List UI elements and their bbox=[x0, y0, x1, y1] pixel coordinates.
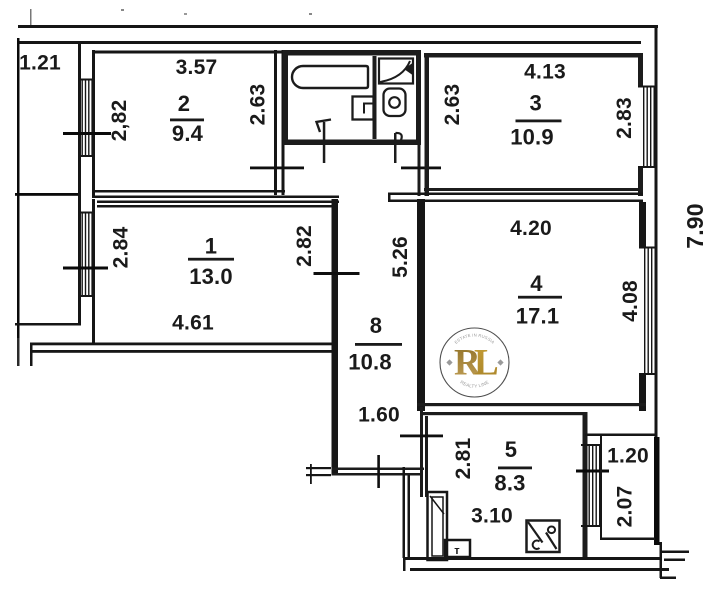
svg-text:1: 1 bbox=[205, 234, 217, 259]
svg-text:2.63: 2.63 bbox=[441, 84, 464, 126]
svg-text:L: L bbox=[474, 343, 499, 384]
svg-text:2.81: 2.81 bbox=[452, 438, 475, 480]
svg-text:17.1: 17.1 bbox=[516, 304, 560, 329]
svg-text:3.10: 3.10 bbox=[471, 505, 513, 528]
svg-text:5: 5 bbox=[505, 437, 517, 462]
svg-text:2.83: 2.83 bbox=[613, 97, 636, 139]
svg-text:1.20: 1.20 bbox=[607, 445, 649, 468]
svg-text:4.13: 4.13 bbox=[524, 61, 566, 84]
svg-text:3: 3 bbox=[529, 91, 541, 116]
svg-text:2.84: 2.84 bbox=[110, 227, 133, 269]
svg-text:2.63: 2.63 bbox=[247, 84, 270, 126]
svg-text:5.26: 5.26 bbox=[389, 236, 412, 278]
svg-text:3.57: 3.57 bbox=[176, 56, 218, 79]
svg-text:13.0: 13.0 bbox=[189, 264, 233, 289]
svg-text:2: 2 bbox=[178, 91, 190, 116]
svg-text:т: т bbox=[454, 545, 460, 557]
svg-text:1.60: 1.60 bbox=[358, 404, 400, 427]
svg-text:8: 8 bbox=[370, 313, 382, 338]
svg-text:2.82: 2.82 bbox=[293, 225, 316, 267]
svg-text:8.3: 8.3 bbox=[494, 471, 525, 496]
svg-text:10.9: 10.9 bbox=[510, 125, 554, 150]
svg-text:7.90: 7.90 bbox=[682, 203, 708, 249]
svg-text:2.07: 2.07 bbox=[614, 486, 637, 528]
svg-text:4.61: 4.61 bbox=[172, 312, 214, 335]
svg-text:10.8: 10.8 bbox=[348, 350, 392, 375]
svg-text:4.20: 4.20 bbox=[510, 217, 552, 240]
svg-text:2,82: 2,82 bbox=[108, 100, 131, 142]
svg-text:4: 4 bbox=[530, 271, 543, 296]
svg-text:1.21: 1.21 bbox=[19, 52, 61, 75]
svg-text:4.08: 4.08 bbox=[619, 280, 642, 322]
svg-text:9.4: 9.4 bbox=[172, 121, 204, 146]
